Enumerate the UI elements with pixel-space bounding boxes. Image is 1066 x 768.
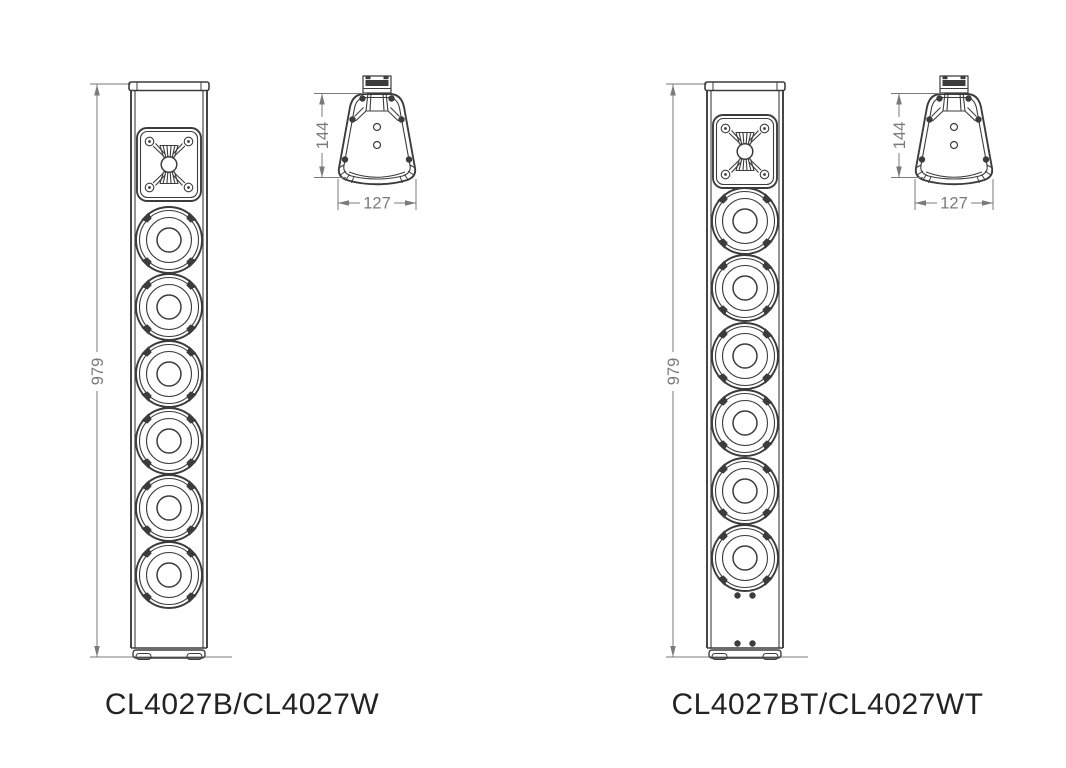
woofer	[712, 525, 778, 591]
model-label-left: CL4027B/CL4027W	[72, 688, 412, 722]
tweeter-left	[137, 128, 201, 201]
height-dimension-text-right: 979	[665, 358, 683, 386]
model-label-right: CL4027BT/CL4027WT	[650, 688, 1005, 722]
woofer	[136, 475, 202, 541]
height-dimension-text-left: 979	[89, 358, 107, 386]
woofer	[712, 390, 778, 456]
depth-dimension-text-right: 144	[891, 122, 909, 150]
depth-dimension-text-left: 144	[314, 122, 332, 150]
width-dimension-text-left: 127	[363, 195, 391, 213]
rear-panel-screws	[734, 592, 755, 646]
topview-shell-right	[916, 76, 993, 184]
top-view-left: 144 127	[314, 76, 416, 213]
height-dimension-left: 979	[89, 84, 232, 657]
speaker-line-drawing: 979 144 127	[0, 0, 1066, 768]
woofer	[712, 188, 778, 254]
woofer	[136, 341, 202, 407]
front-view-right: 979	[665, 82, 808, 660]
tweeter-right	[713, 115, 777, 188]
woofer	[712, 458, 778, 524]
woofer	[712, 323, 778, 389]
technical-drawing-page: 979 144 127	[0, 0, 1066, 768]
woofer	[136, 274, 202, 340]
topview-shell-left	[339, 76, 416, 184]
woofer	[712, 255, 778, 321]
top-view-right: 144 127	[891, 76, 993, 213]
woofer	[136, 207, 202, 273]
woofer	[136, 542, 202, 608]
width-dimension-text-right: 127	[940, 195, 968, 213]
front-view-left: 979	[89, 82, 232, 660]
woofer	[136, 408, 202, 474]
